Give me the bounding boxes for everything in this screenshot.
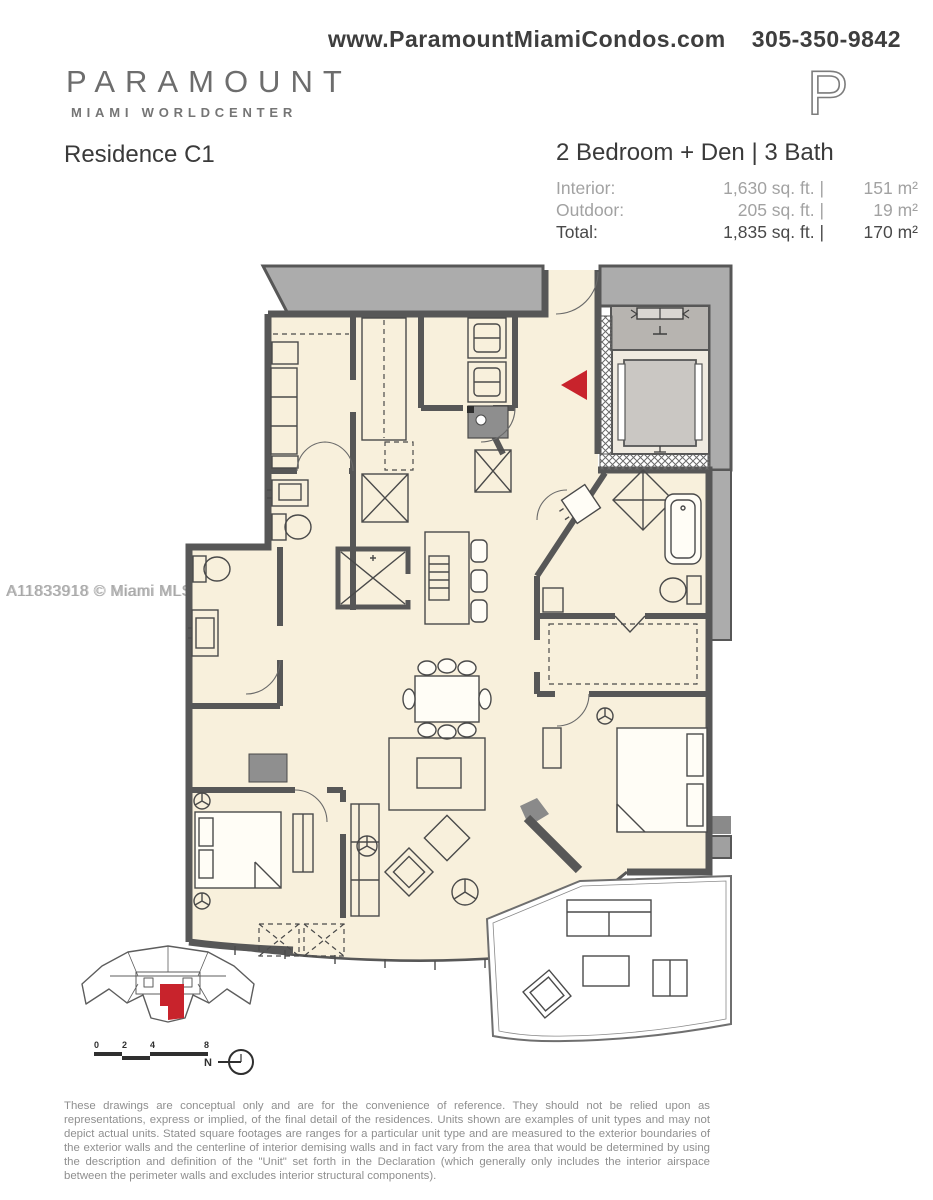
- spec-metric: 170 m²: [824, 221, 918, 243]
- spec-row-interior: Interior: 1,630 sq. ft. | 151 m²: [556, 177, 918, 199]
- spec-metric: 151 m²: [824, 177, 918, 199]
- flyer-page: www.ParamountMiamiCondos.com305-350-9842…: [0, 0, 933, 1200]
- spec-metric: 19 m²: [824, 199, 918, 221]
- brand-subtitle: MIAMI WORLDCENTER: [66, 105, 352, 120]
- scale-tick: 2: [122, 1040, 127, 1050]
- legal-disclaimer: These drawings are conceptual only and a…: [64, 1100, 710, 1183]
- spec-label: Interior:: [556, 177, 660, 199]
- unit-configuration: 2 Bedroom + Den | 3 Bath: [556, 139, 834, 167]
- brand-logo: PARAMOUNT MIAMI WORLDCENTER: [66, 64, 352, 120]
- contact-header: www.ParamountMiamiCondos.com305-350-9842: [328, 26, 901, 53]
- spec-label: Total:: [556, 221, 660, 243]
- scale-tick: 0: [94, 1040, 99, 1050]
- north-arrow-icon: N: [196, 1044, 266, 1080]
- spec-row-total: Total: 1,835 sq. ft. | 170 m²: [556, 221, 918, 243]
- spec-sqft: 205 sq. ft. |: [660, 199, 824, 221]
- spec-sqft: 1,835 sq. ft. |: [660, 221, 824, 243]
- brand-mark-letter: P: [807, 59, 848, 124]
- north-label: N: [204, 1057, 212, 1069]
- elevator: [600, 306, 710, 470]
- spec-row-outdoor: Outdoor: 205 sq. ft. | 19 m²: [556, 199, 918, 221]
- scale-tick: 4: [150, 1040, 155, 1050]
- spec-sqft: 1,630 sq. ft. |: [660, 177, 824, 199]
- building-keyplan: [80, 928, 260, 1046]
- residence-title: Residence C1: [64, 141, 215, 169]
- area-spec-table: Interior: 1,630 sq. ft. | 151 m² Outdoor…: [556, 177, 918, 243]
- brand-p-monogram-icon: P: [795, 58, 869, 124]
- spec-label: Outdoor:: [556, 199, 660, 221]
- brand-name: PARAMOUNT: [66, 64, 352, 100]
- website-url: www.ParamountMiamiCondos.com: [328, 26, 726, 52]
- phone-number: 305-350-9842: [752, 26, 901, 52]
